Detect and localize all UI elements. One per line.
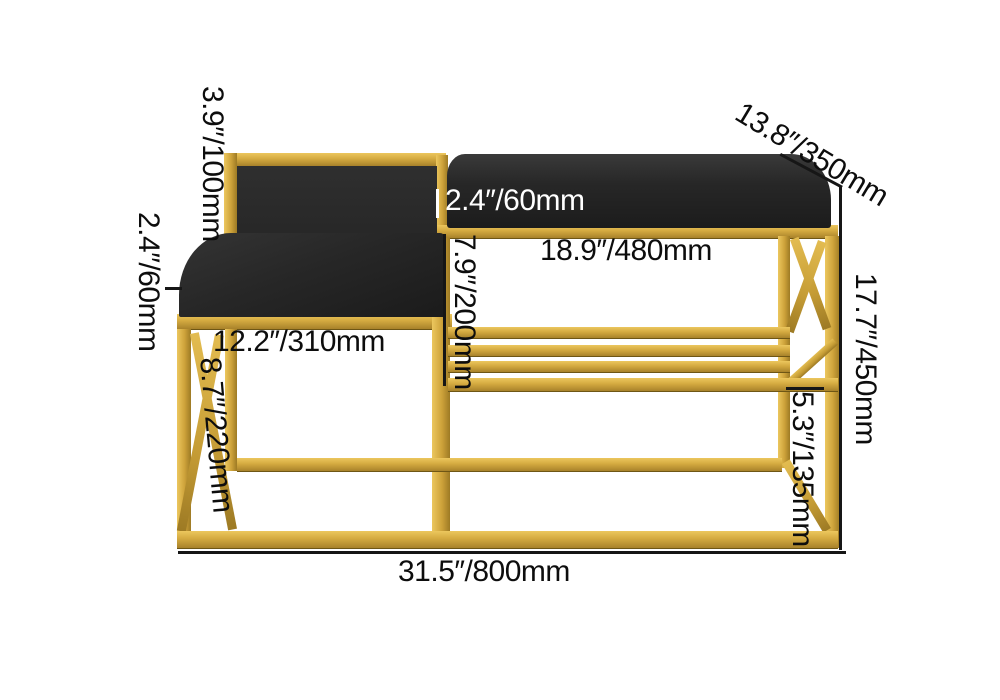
dim-overall-width: 31.5″/800mm [398,556,570,588]
overall-width-line [178,551,846,554]
dim-shelf-clearance-height: 7.9″/200mm [449,234,481,392]
bench-cushion-tick [436,189,439,218]
seat-cushion-tick [165,287,182,290]
shelf-slat [448,361,790,373]
dim-seat-cushion-thickness: 2.4″/60mm [133,212,165,358]
shelf-front-rail [448,378,838,392]
bottom-clearance-tick [786,387,824,390]
shelf-slat [448,327,790,339]
front-right-leg [825,236,840,548]
dim-seat-width: 12.2″/310mm [213,326,385,358]
bottom-rail [177,531,838,549]
dim-bench-cushion-thickness: 2.4″/60mm [445,185,585,217]
dim-shelf-width: 18.9″/480mm [540,235,712,267]
dim-frame-height: 17.7″/450mm [850,273,882,465]
shelf-slat [448,345,790,357]
dim-backrest-height: 3.9″/100mm [197,86,229,252]
shelf-clearance-line [443,234,446,386]
frame-height-line [839,186,842,550]
lower-rail [237,458,782,472]
product-dimension-diagram: 3.9″/100mm 2.4″/60mm 12.2″/310mm 8.7″/22… [0,0,1000,700]
backrest-top-rail [224,153,446,167]
dim-bottom-clearance-height: 5.3″/135mm [787,391,819,563]
